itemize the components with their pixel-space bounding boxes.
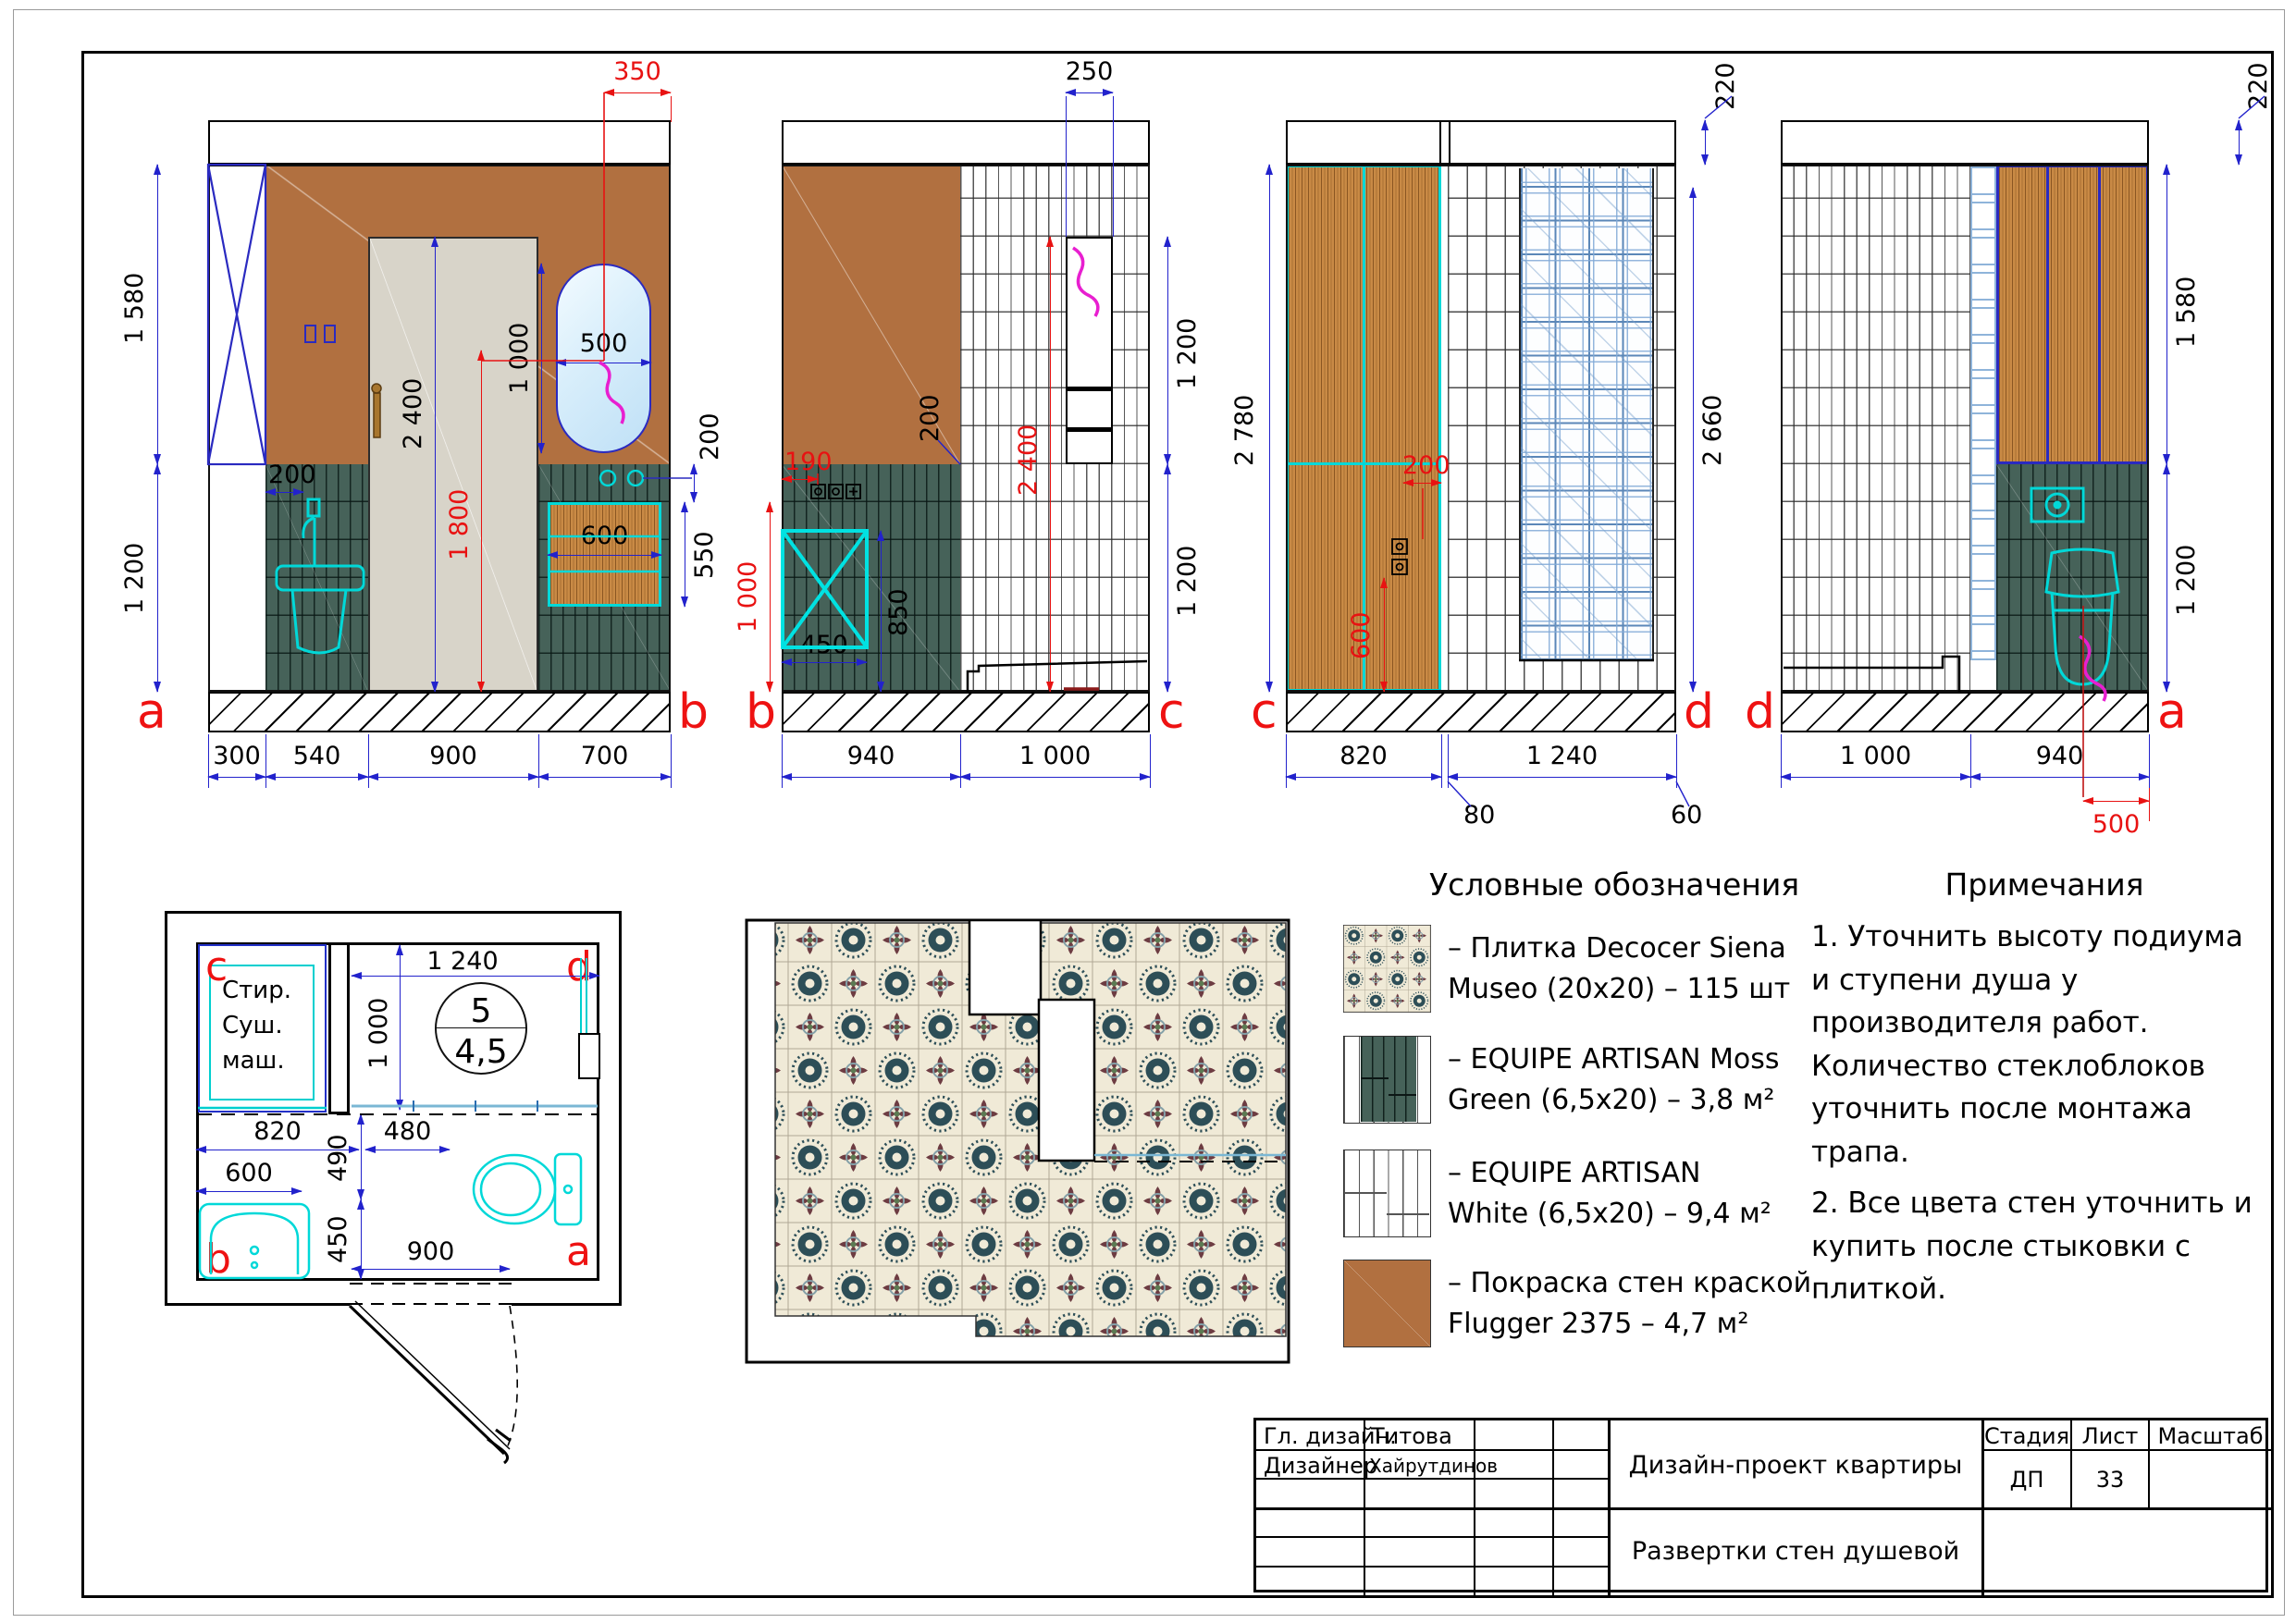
towel-hooks	[600, 471, 692, 486]
toilet-front	[2046, 549, 2118, 684]
shower-unit-brace	[783, 531, 867, 647]
legend-item-label: Flugger 2375 – 4,7 м²	[1448, 1308, 1748, 1340]
titleblock-stage-label: Стадия	[1983, 1425, 2070, 1447]
towel-warmer-rails	[549, 536, 660, 572]
plan-sink	[200, 1204, 309, 1278]
shower-podium-step	[1784, 657, 1959, 692]
plan-toilet	[474, 1154, 581, 1224]
callout-leader	[938, 440, 960, 464]
plan-door	[350, 1282, 517, 1463]
niche-towel-squiggle	[1073, 248, 1098, 316]
vector-overlay	[0, 0, 2296, 1623]
plan-duct	[579, 1034, 599, 1078]
washer-niche-brace	[208, 165, 265, 464]
mixer-sockets	[811, 485, 860, 498]
note-2: 2. Все цвета стен уточнить и купить посл…	[1811, 1182, 2253, 1311]
mirror-centerlines	[481, 92, 604, 361]
plan-shower-glass	[198, 1100, 598, 1114]
legend-swatch-paint	[1343, 1260, 1431, 1347]
legend-item-label: – Плитка Decocer Siena	[1448, 932, 1786, 965]
flush-plate	[2031, 488, 2083, 522]
titleblock-name-2: Хайрутдинов	[1369, 1457, 1498, 1475]
titleblock-sheet-label: Лист	[2072, 1425, 2148, 1447]
legend-item-label: Green (6,5x20) – 3,8 м²	[1448, 1084, 1774, 1116]
drawing-sheet: a b 1 580 1 200 350 500 1 000 2 400 1 80…	[0, 0, 2296, 1623]
titleblock-drawing: Развертки стен душевой	[1610, 1539, 1981, 1564]
legend-title: Условные обозначения	[1429, 869, 1790, 900]
title-block: Гл. дизайн. Титова Дизайнер Хайрутдинов …	[1253, 1418, 2268, 1592]
callout-leader	[1448, 781, 1471, 806]
note-1: 1. Уточнить высоту подиума и ступени душ…	[1811, 916, 2253, 1174]
legend-item-label: White (6,5x20) – 9,4 м²	[1448, 1198, 1771, 1230]
light-switch	[305, 326, 335, 342]
shower-podium-step	[968, 661, 1147, 692]
legend-swatch-white	[1343, 1150, 1431, 1237]
sink-fixture	[277, 499, 364, 653]
legend-item-label: – EQUIPE ARTISAN	[1448, 1157, 1700, 1189]
legend-swatch-moss-green	[1343, 1036, 1431, 1124]
titleblock-scale-label: Масштаб	[2150, 1425, 2271, 1447]
mirror-towel-squiggle	[599, 363, 623, 424]
notes-title: Примечания	[1887, 869, 2202, 900]
legend-item-label: – Покраска стен краской	[1448, 1267, 1811, 1299]
titleblock-project: Дизайн-проект квартиры	[1610, 1453, 1981, 1478]
callout-leader	[1676, 781, 1689, 806]
legend-item-label: Museo (20x20) – 115 шт	[1448, 973, 1790, 1005]
legend-item-label: – EQUIPE ARTISAN Moss	[1448, 1043, 1779, 1076]
door-handle	[372, 384, 381, 437]
wall-sockets	[1392, 539, 1407, 574]
callout-leader	[2239, 96, 2265, 118]
titleblock-role-2: Дизайнер	[1264, 1455, 1377, 1477]
legend-swatch-decocer	[1343, 925, 1431, 1013]
titleblock-sheet-value: 33	[2072, 1469, 2148, 1491]
callout-leader	[1705, 96, 1732, 118]
titleblock-name-1: Титова	[1371, 1425, 1452, 1447]
titleblock-stage-value: ДП	[1983, 1469, 2070, 1491]
